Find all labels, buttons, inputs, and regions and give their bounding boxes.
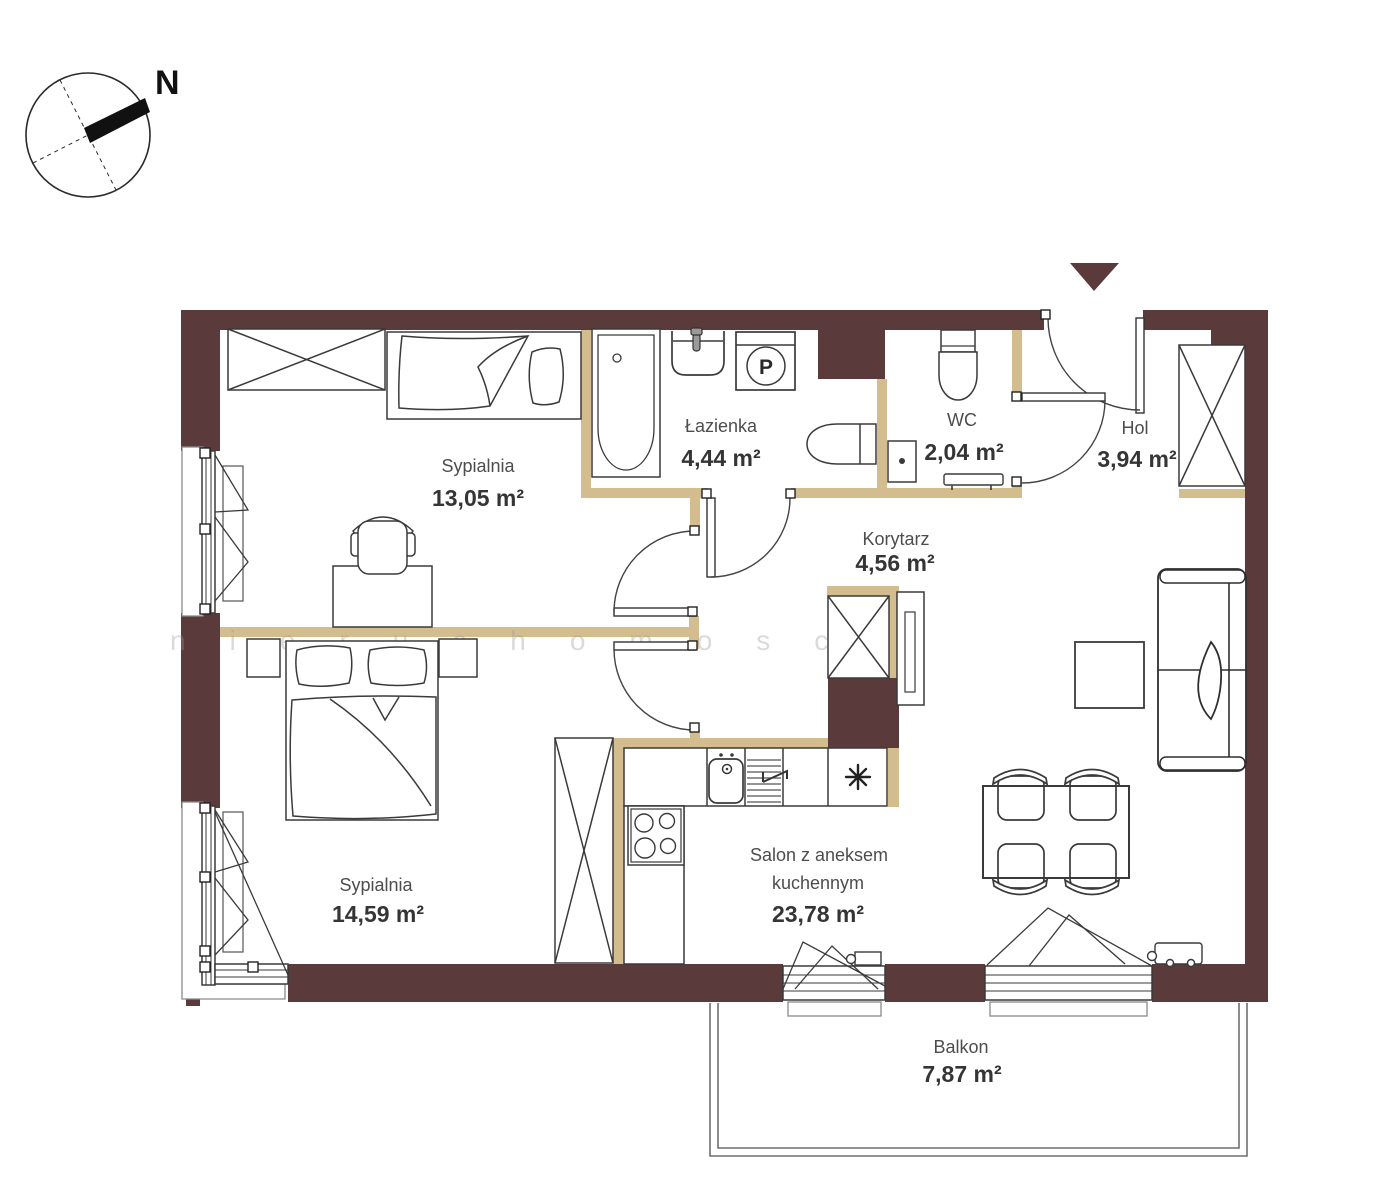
svg-text:kuchennym: kuchennym <box>772 873 864 893</box>
svg-text:3,94 m²: 3,94 m² <box>1097 446 1177 472</box>
svg-text:7,87 m²: 7,87 m² <box>922 1061 1002 1087</box>
svg-text:P: P <box>759 356 773 379</box>
svg-text:WC: WC <box>947 410 977 430</box>
svg-text:14,59 m²: 14,59 m² <box>332 901 424 927</box>
svg-text:23,78 m²: 23,78 m² <box>772 901 864 927</box>
svg-text:Hol: Hol <box>1121 418 1148 438</box>
svg-text:nieruchomosci: nieruchomosci <box>170 625 923 656</box>
svg-text:2,04 m²: 2,04 m² <box>924 439 1004 465</box>
svg-text:Sypialnia: Sypialnia <box>441 456 515 476</box>
svg-text:13,05 m²: 13,05 m² <box>432 485 524 511</box>
svg-text:N: N <box>155 64 180 102</box>
svg-text:Salon z aneksem: Salon z aneksem <box>750 845 888 865</box>
svg-text:Łazienka: Łazienka <box>685 416 758 436</box>
svg-text:Balkon: Balkon <box>933 1037 988 1057</box>
svg-text:4,56 m²: 4,56 m² <box>855 550 935 576</box>
svg-text:Sypialnia: Sypialnia <box>339 875 413 895</box>
svg-text:Korytarz: Korytarz <box>862 529 929 549</box>
svg-text:4,44 m²: 4,44 m² <box>681 445 761 471</box>
